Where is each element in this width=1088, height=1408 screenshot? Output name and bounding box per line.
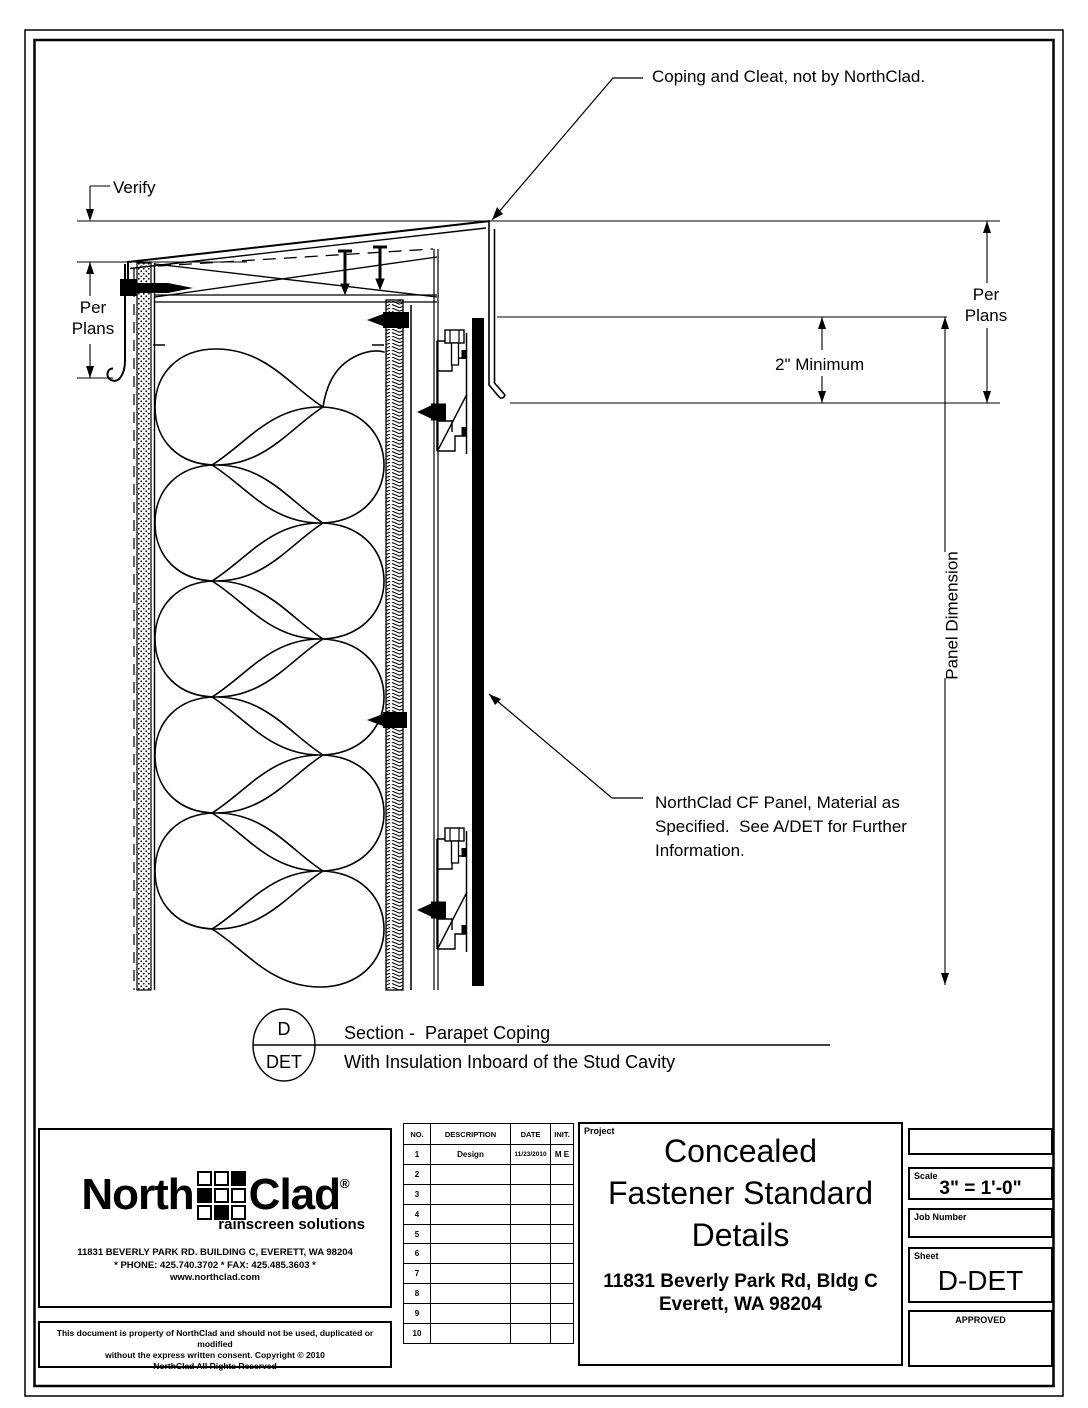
revision-row: 6: [404, 1244, 574, 1264]
revision-cell-init: [551, 1224, 574, 1244]
revision-cell-date: [511, 1324, 551, 1344]
revision-cell-init: [551, 1304, 574, 1324]
scale-box: Scale 3" = 1'-0": [908, 1167, 1053, 1200]
copyright-line2: without the express written consent. Cop…: [40, 1350, 390, 1361]
job-number-label: Job Number: [914, 1212, 967, 1222]
company-address: 11831 BEVERLY PARK RD. BUILDING C, EVERE…: [40, 1247, 390, 1285]
job-number-box: Job Number: [908, 1208, 1053, 1238]
company-phone-fax: * PHONE: 425.740.3702 * FAX: 425.485.360…: [40, 1260, 390, 1273]
revision-header-cell: INIT.: [551, 1124, 574, 1145]
revision-row: 10: [404, 1324, 574, 1344]
revision-cell-description: [431, 1244, 511, 1264]
dimension-lines: [90, 186, 987, 985]
revision-cell-description: [431, 1264, 511, 1284]
revision-row: 1Design11/23/2010M E: [404, 1145, 574, 1165]
revision-row: 9: [404, 1304, 574, 1324]
revision-cell-description: [431, 1184, 511, 1204]
copyright-line1: This document is property of NorthClad a…: [40, 1328, 390, 1350]
drawing-sheet: Coping and Cleat, not by NorthClad. Veri…: [0, 0, 1088, 1408]
revision-cell-init: [551, 1204, 574, 1224]
scale-value: 3" = 1'-0": [910, 1178, 1051, 1200]
project-title-line3: Details: [580, 1214, 901, 1256]
project-address: 11831 Beverly Park Rd, Bldg C Everett, W…: [580, 1270, 901, 1316]
section-detail-letter: D: [264, 1019, 304, 1040]
revision-table-body: 1Design11/23/2010M E2345678910: [404, 1145, 574, 1344]
per-plans-right-label: PerPlans: [951, 284, 1021, 326]
revision-cell-date: [511, 1204, 551, 1224]
revision-row: 4: [404, 1204, 574, 1224]
revision-row: 3: [404, 1184, 574, 1204]
company-address-line: 11831 BEVERLY PARK RD. BUILDING C, EVERE…: [40, 1247, 390, 1260]
copyright-text: This document is property of NorthClad a…: [40, 1323, 390, 1372]
per-plans-right-line2: Plans: [965, 306, 1008, 325]
coping-note: Coping and Cleat, not by NorthClad.: [652, 66, 925, 87]
panel-dimension-label: Panel Dimension: [942, 536, 963, 696]
parapet-top-framing: [155, 249, 437, 302]
revision-cell-no: 1: [404, 1145, 431, 1165]
panel-clip-bottom: [417, 828, 467, 952]
right-wall: [372, 249, 438, 990]
leader-arrowheads: [489, 207, 503, 705]
revision-cell-init: M E: [551, 1145, 574, 1165]
verify-label: Verify: [113, 177, 156, 198]
coping-fastener-screws: [338, 247, 387, 294]
revision-cell-init: [551, 1164, 574, 1184]
per-plans-left-line2: Plans: [72, 319, 115, 338]
revision-cell-no: 6: [404, 1244, 431, 1264]
revision-table-header-row: NO.DESCRIPTIONDATEINIT.: [404, 1124, 574, 1145]
extension-lines: [77, 221, 1000, 403]
revision-cell-no: 2: [404, 1164, 431, 1184]
revision-cell-no: 3: [404, 1184, 431, 1204]
revision-cell-date: [511, 1164, 551, 1184]
leader-lines: [489, 78, 643, 798]
project-address-line2: Everett, WA 98204: [580, 1293, 901, 1316]
stamp-empty-box: [908, 1128, 1053, 1155]
revision-cell-no: 10: [404, 1324, 431, 1344]
sheet-box: Sheet D-DET: [908, 1247, 1053, 1303]
project-label: Project: [584, 1126, 615, 1136]
revision-table: NO.DESCRIPTIONDATEINIT. 1Design11/23/201…: [403, 1123, 574, 1344]
revision-row: 7: [404, 1264, 574, 1284]
revision-cell-init: [551, 1324, 574, 1344]
logo-clad-text: Clad: [249, 1170, 340, 1220]
revision-cell-description: Design: [431, 1145, 511, 1165]
per-plans-left-line1: Per: [80, 298, 106, 317]
revision-cell-date: [511, 1284, 551, 1304]
scale-label: Scale: [914, 1171, 938, 1181]
cf-panel-note-line1: NorthClad CF Panel, Material as: [655, 793, 900, 812]
logo-block: North Clad ® rainscreen solutions 11831 …: [38, 1128, 392, 1308]
revision-cell-description: [431, 1324, 511, 1344]
revision-cell-no: 5: [404, 1224, 431, 1244]
left-wall: [134, 263, 165, 990]
revision-cell-no: 4: [404, 1204, 431, 1224]
revision-cell-date: [511, 1184, 551, 1204]
project-block: Project Concealed Fastener Standard Deta…: [578, 1122, 903, 1366]
section-title: Section - Parapet Coping: [344, 1023, 550, 1044]
dimension-arrowheads: [86, 209, 991, 985]
revision-cell-init: [551, 1244, 574, 1264]
project-title-line1: Concealed: [580, 1130, 901, 1172]
revision-cell-no: 8: [404, 1284, 431, 1304]
revision-cell-date: [511, 1304, 551, 1324]
revision-cell-date: [511, 1264, 551, 1284]
revision-cell-date: [511, 1224, 551, 1244]
revision-row: 2: [404, 1164, 574, 1184]
revision-cell-init: [551, 1284, 574, 1304]
cf-panel-note: NorthClad CF Panel, Material asSpecified…: [655, 791, 907, 863]
revision-row: 8: [404, 1284, 574, 1304]
project-address-line1: 11831 Beverly Park Rd, Bldg C: [580, 1270, 901, 1293]
sheet-label: Sheet: [914, 1251, 939, 1261]
revision-cell-description: [431, 1284, 511, 1304]
revision-row: 5: [404, 1224, 574, 1244]
revision-cell-description: [431, 1224, 511, 1244]
approved-box: APPROVED: [908, 1310, 1053, 1367]
sheet-value: D-DET: [910, 1265, 1051, 1297]
revision-cell-date: [511, 1244, 551, 1264]
revision-cell-no: 9: [404, 1304, 431, 1324]
revision-table-block: NO.DESCRIPTIONDATEINIT. 1Design11/23/201…: [403, 1123, 574, 1344]
northclad-logo: North Clad ®: [40, 1170, 390, 1220]
revision-cell-no: 7: [404, 1264, 431, 1284]
logo-grid-icon: [197, 1171, 246, 1220]
revision-header-cell: DESCRIPTION: [431, 1124, 511, 1145]
section-subtitle: With Insulation Inboard of the Stud Cavi…: [344, 1052, 675, 1073]
cf-panel-note-line2: Specified. See A/DET for Further: [655, 817, 907, 836]
logo-north-text: North: [81, 1170, 193, 1220]
revision-cell-date: 11/23/2010: [511, 1145, 551, 1165]
copyright-line3: NorthClad All Rights Reserved: [40, 1361, 390, 1372]
section-sheet-ref: DET: [259, 1052, 309, 1073]
revision-header-cell: NO.: [404, 1124, 431, 1145]
per-plans-right-line1: Per: [973, 285, 999, 304]
cf-panel: [472, 318, 484, 986]
per-plans-left-label: PerPlans: [58, 297, 128, 339]
company-website: www.northclad.com: [40, 1272, 390, 1285]
revision-cell-init: [551, 1184, 574, 1204]
revision-cell-description: [431, 1164, 511, 1184]
cf-panel-note-line3: Information.: [655, 841, 745, 860]
revision-cell-description: [431, 1204, 511, 1224]
revision-cell-description: [431, 1304, 511, 1324]
revision-cell-init: [551, 1264, 574, 1284]
copyright-block: This document is property of NorthClad a…: [38, 1321, 392, 1368]
batt-insulation: [155, 349, 384, 987]
panel-clip-top: [417, 330, 467, 454]
approved-label: APPROVED: [910, 1315, 1051, 1325]
revision-header-cell: DATE: [511, 1124, 551, 1145]
project-title: Concealed Fastener Standard Details: [580, 1130, 901, 1256]
project-title-line2: Fastener Standard: [580, 1172, 901, 1214]
two-inch-minimum-label: 2" Minimum: [775, 354, 864, 375]
registered-mark: ®: [340, 1179, 349, 1189]
